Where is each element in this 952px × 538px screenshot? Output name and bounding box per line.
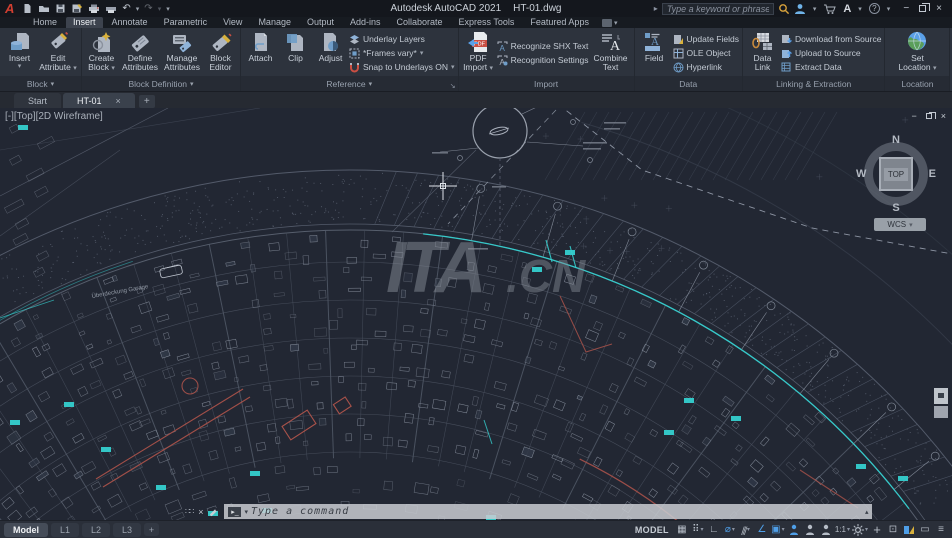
adjust-icon	[320, 31, 342, 53]
block-editor-icon	[210, 31, 232, 53]
panel-title-reference[interactable]: Reference▾↘	[241, 76, 458, 91]
autodesk-dropdown-icon[interactable]: ▾	[858, 5, 862, 13]
field-button[interactable]: A Field	[638, 30, 671, 76]
layout-tab-l3[interactable]: L3	[113, 523, 141, 537]
panel-title-data[interactable]: Data	[635, 76, 742, 91]
combine-text-icon: A	[600, 31, 622, 53]
ole-object-icon	[673, 48, 684, 59]
save-as-icon[interactable]	[71, 3, 83, 14]
recognize-shx-icon: A	[497, 41, 508, 52]
new-file-icon[interactable]	[22, 3, 33, 14]
object-snap-tracking-toggle[interactable]: ∠	[755, 522, 769, 537]
hyperlink-icon	[673, 62, 684, 73]
command-dropdown-icon[interactable]: ▾	[244, 508, 248, 516]
create-block-button[interactable]: Create Block ▾	[85, 30, 118, 76]
undo-icon[interactable]: ↶	[122, 4, 130, 14]
wcs-dropdown[interactable]: WCS▾	[874, 218, 926, 231]
grid-toggle[interactable]: ▦	[675, 522, 689, 537]
graphics-performance-button[interactable]	[902, 522, 916, 537]
layout-tab-l1[interactable]: L1	[51, 523, 79, 537]
snap-to-underlays-button[interactable]: Snap to Underlays ON▾	[349, 61, 455, 74]
tab-featured-apps[interactable]: Featured Apps	[523, 17, 596, 28]
search-expand-icon[interactable]: ▸	[654, 4, 658, 13]
svg-text:A: A	[499, 44, 505, 52]
tab-manage[interactable]: Manage	[251, 17, 298, 28]
ole-object-button[interactable]: OLE Object	[673, 47, 739, 60]
field-icon: A	[643, 31, 665, 53]
ribbon: Insert▾ Edit Attribute ▾ Block▾ Create B…	[0, 28, 952, 92]
recognize-shx-text-button[interactable]: A Recognize SHX Text	[497, 40, 589, 53]
tab-parametric[interactable]: Parametric	[157, 17, 215, 28]
panel-title-import[interactable]: Import	[459, 76, 634, 91]
tab-home[interactable]: Home	[26, 17, 64, 28]
snap-underlays-icon	[349, 62, 360, 73]
frames-icon	[349, 48, 360, 59]
doc-tab-ht01[interactable]: HT-01×	[63, 93, 135, 108]
recognition-settings-button[interactable]: A Recognition Settings	[497, 54, 589, 67]
sign-in-icon[interactable]	[794, 3, 806, 15]
edit-attribute-icon	[47, 31, 69, 53]
command-prompt-icon[interactable]: ▸_	[228, 507, 241, 517]
extract-data-icon	[781, 62, 792, 73]
tab-output[interactable]: Output	[300, 17, 341, 28]
tab-express-tools[interactable]: Express Tools	[452, 17, 522, 28]
underlay-layers-button[interactable]: Underlay Layers	[349, 33, 455, 46]
annotation-scale-button[interactable]: 1:1▾	[835, 522, 850, 537]
ribbon-display-toggle[interactable]: ▾	[602, 19, 618, 27]
tab-insert[interactable]: Insert	[66, 17, 103, 28]
status-plus-icon[interactable]: +	[870, 522, 884, 537]
update-fields-button[interactable]: Update Fields	[673, 33, 739, 46]
block-editor-button[interactable]: BlockEditor	[204, 30, 237, 76]
upload-icon	[781, 48, 792, 59]
underlay-layers-icon	[349, 34, 360, 45]
attach-icon	[250, 31, 272, 53]
panel-block-definition: Create Block ▾ DefineAttributes ManageAt…	[82, 28, 241, 91]
open-file-icon[interactable]	[38, 3, 50, 14]
annotation-scale-person-icon[interactable]	[819, 522, 833, 537]
save-icon[interactable]	[55, 3, 66, 14]
tab-collaborate[interactable]: Collaborate	[390, 17, 450, 28]
layout-tab-l2[interactable]: L2	[82, 523, 110, 537]
manage-attributes-icon	[171, 31, 193, 53]
minimize-button[interactable]: −	[903, 3, 909, 14]
viewcube-east[interactable]: E	[929, 168, 936, 180]
workspace-switching-button[interactable]: ▾	[852, 522, 868, 537]
restore-button[interactable]	[919, 5, 926, 12]
app-menu-button[interactable]: A	[0, 1, 22, 16]
download-icon	[781, 34, 792, 45]
new-drawing-tab-button[interactable]: +	[139, 95, 155, 108]
edit-attribute-button[interactable]: Edit Attribute ▾	[38, 30, 78, 76]
annotation-visibility-toggle[interactable]	[787, 522, 801, 537]
help-icon[interactable]: ?	[869, 3, 880, 14]
data-link-button[interactable]: DataLink	[746, 30, 779, 76]
new-layout-button[interactable]: +	[144, 523, 159, 536]
drawing-window-controls: − ×	[911, 111, 946, 121]
viewcube-north[interactable]: N	[892, 134, 900, 146]
autodesk-logo-icon[interactable]: A	[843, 3, 851, 15]
pdf-import-button[interactable]: PDF PDF Import ▾	[462, 30, 495, 76]
help-dropdown-icon[interactable]: ▾	[887, 5, 891, 13]
clean-screen-toggle[interactable]: ▭	[918, 522, 932, 537]
svg-text:A: A	[610, 39, 621, 53]
doc-minimize-button[interactable]: −	[911, 111, 916, 121]
dialog-launcher-icon[interactable]: ↘	[450, 82, 456, 90]
hyperlink-button[interactable]: Hyperlink	[673, 61, 739, 74]
frames-vary-button[interactable]: *Frames vary*▾	[349, 47, 455, 60]
manage-attributes-button[interactable]: ManageAttributes	[162, 30, 202, 76]
layout-tabs: Model L1 L2 L3 +	[0, 523, 159, 537]
panel-block: Insert▾ Edit Attribute ▾ Block▾	[0, 28, 82, 91]
signin-dropdown-icon[interactable]: ▾	[813, 5, 817, 13]
model-space-label[interactable]: MODEL	[635, 525, 669, 535]
data-link-icon	[751, 31, 773, 53]
doc-tab-start[interactable]: Start	[14, 93, 61, 108]
qat-customize-icon[interactable]: ▾	[166, 5, 170, 13]
viewcube-top-face[interactable]: TOP	[879, 157, 913, 191]
redo-dropdown-icon[interactable]: ▾	[158, 5, 162, 13]
object-snap-toggle[interactable]: ▣▾	[771, 522, 785, 537]
layout-tab-model[interactable]: Model	[4, 523, 48, 537]
undo-dropdown-icon[interactable]: ▾	[136, 5, 140, 13]
viewport-controls-label[interactable]: [-][Top][2D Wireframe]	[5, 111, 103, 122]
annotation-autoscale-toggle[interactable]	[803, 522, 817, 537]
combine-text-button[interactable]: A CombineText	[591, 30, 631, 76]
app-store-cart-icon[interactable]	[823, 3, 836, 15]
tab-annotate[interactable]: Annotate	[105, 17, 155, 28]
download-from-source-button[interactable]: Download from Source	[781, 33, 881, 46]
redo-icon[interactable]: ↷	[144, 4, 152, 14]
tab-add-ins[interactable]: Add-ins	[343, 17, 388, 28]
polar-tracking-toggle[interactable]: ⌀▾	[723, 522, 737, 537]
command-customize-wrench-icon[interactable]	[208, 506, 220, 518]
ortho-toggle[interactable]: ∟	[707, 522, 721, 537]
status-bar: Model L1 L2 L3 + MODEL ▦ ⠿▾ ∟ ⌀▾ |||▾ ∠ …	[0, 520, 952, 538]
title-bar: A ↶▾ ↷▾ ▾ Autodesk AutoCAD 2021HT-01.dwg…	[0, 0, 952, 17]
document-tab-bar: Start HT-01× +	[0, 92, 952, 108]
document-title: HT-01.dwg	[513, 3, 561, 14]
viewcube-west[interactable]: W	[856, 168, 866, 180]
insert-button[interactable]: Insert▾	[3, 30, 36, 76]
upload-to-source-button[interactable]: Upload to Source	[781, 47, 881, 60]
customization-menu-button[interactable]: ≡	[934, 522, 948, 537]
attach-button[interactable]: Attach	[244, 30, 277, 76]
panel-title-location[interactable]: Location	[885, 76, 949, 91]
create-block-icon	[91, 31, 113, 53]
panel-title-linking[interactable]: Linking & Extraction	[743, 76, 884, 91]
define-attributes-button[interactable]: DefineAttributes	[120, 30, 160, 76]
tab-view[interactable]: View	[216, 17, 249, 28]
command-grip-handle[interactable]: ∷∷	[185, 507, 193, 516]
doc-close-button[interactable]: ×	[941, 111, 946, 121]
panel-data: A Field Update Fields OLE Object Hyperli…	[635, 28, 743, 91]
panel-title-block[interactable]: Block▾	[0, 76, 81, 91]
panel-linking: DataLink Download from Source Upload to …	[743, 28, 885, 91]
svg-text:ITA: ITA	[386, 228, 482, 308]
ribbon-tab-bar: Home Insert Annotate Parametric View Man…	[0, 17, 952, 28]
plot-icon[interactable]	[88, 3, 100, 14]
quick-access-toolbar: ↶▾ ↷▾ ▾	[22, 3, 169, 14]
extract-data-button[interactable]: Extract Data	[781, 61, 881, 74]
svg-text:.CN: .CN	[506, 250, 586, 302]
ribbon-display-icon	[602, 19, 612, 27]
close-button[interactable]: ×	[936, 3, 942, 14]
status-toggles: MODEL ▦ ⠿▾ ∟ ⌀▾ |||▾ ∠ ▣▾ 1:1▾ ▾ + ⊡ ▭ ≡	[635, 522, 952, 537]
command-collapse-icon[interactable]: ▴	[865, 508, 869, 516]
isometric-drafting-toggle[interactable]: |||▾	[739, 522, 753, 537]
command-input-field[interactable]: ▸_ ▾ ▴	[224, 504, 872, 519]
viewcube-south[interactable]: S	[892, 202, 899, 214]
isolate-objects-toggle[interactable]: ⊡	[886, 522, 900, 537]
doc-restore-button[interactable]	[926, 113, 932, 119]
command-input[interactable]	[251, 506, 862, 517]
insert-icon	[9, 31, 31, 53]
adjust-button[interactable]: Adjust	[314, 30, 347, 76]
print-preview-icon[interactable]	[105, 3, 117, 14]
define-attributes-icon	[129, 31, 151, 53]
clip-icon	[285, 31, 307, 53]
command-close-icon[interactable]: ×	[198, 507, 203, 517]
viewcube[interactable]: N E S W TOP	[858, 136, 934, 212]
panel-location: Set Location ▾ Location	[885, 28, 950, 91]
pdf-import-icon: PDF	[467, 31, 489, 53]
panel-title-block-definition[interactable]: Block Definition▾	[82, 76, 240, 91]
panel-reference: Attach Clip Adjust Underlay Layers *Fram…	[241, 28, 459, 91]
panel-import: PDF PDF Import ▾ A Recognize SHX Text A …	[459, 28, 635, 91]
search-icon[interactable]	[778, 3, 790, 15]
command-line-bar: ∷∷ × ▸_ ▾ ▴	[185, 504, 872, 519]
set-location-button[interactable]: Set Location ▾	[897, 30, 937, 76]
recognition-settings-icon: A	[497, 55, 508, 66]
update-fields-icon	[673, 34, 684, 45]
close-tab-icon[interactable]: ×	[116, 96, 121, 106]
snap-mode-toggle[interactable]: ⠿▾	[691, 522, 705, 537]
cad-drawing[interactable]: Überdeckung GarageITA.CN	[0, 108, 952, 520]
drawing-area[interactable]: Überdeckung GarageITA.CN [-][Top][2D Wir…	[0, 108, 952, 520]
set-location-icon	[906, 31, 928, 53]
search-input[interactable]	[662, 3, 774, 15]
clip-button[interactable]: Clip	[279, 30, 312, 76]
